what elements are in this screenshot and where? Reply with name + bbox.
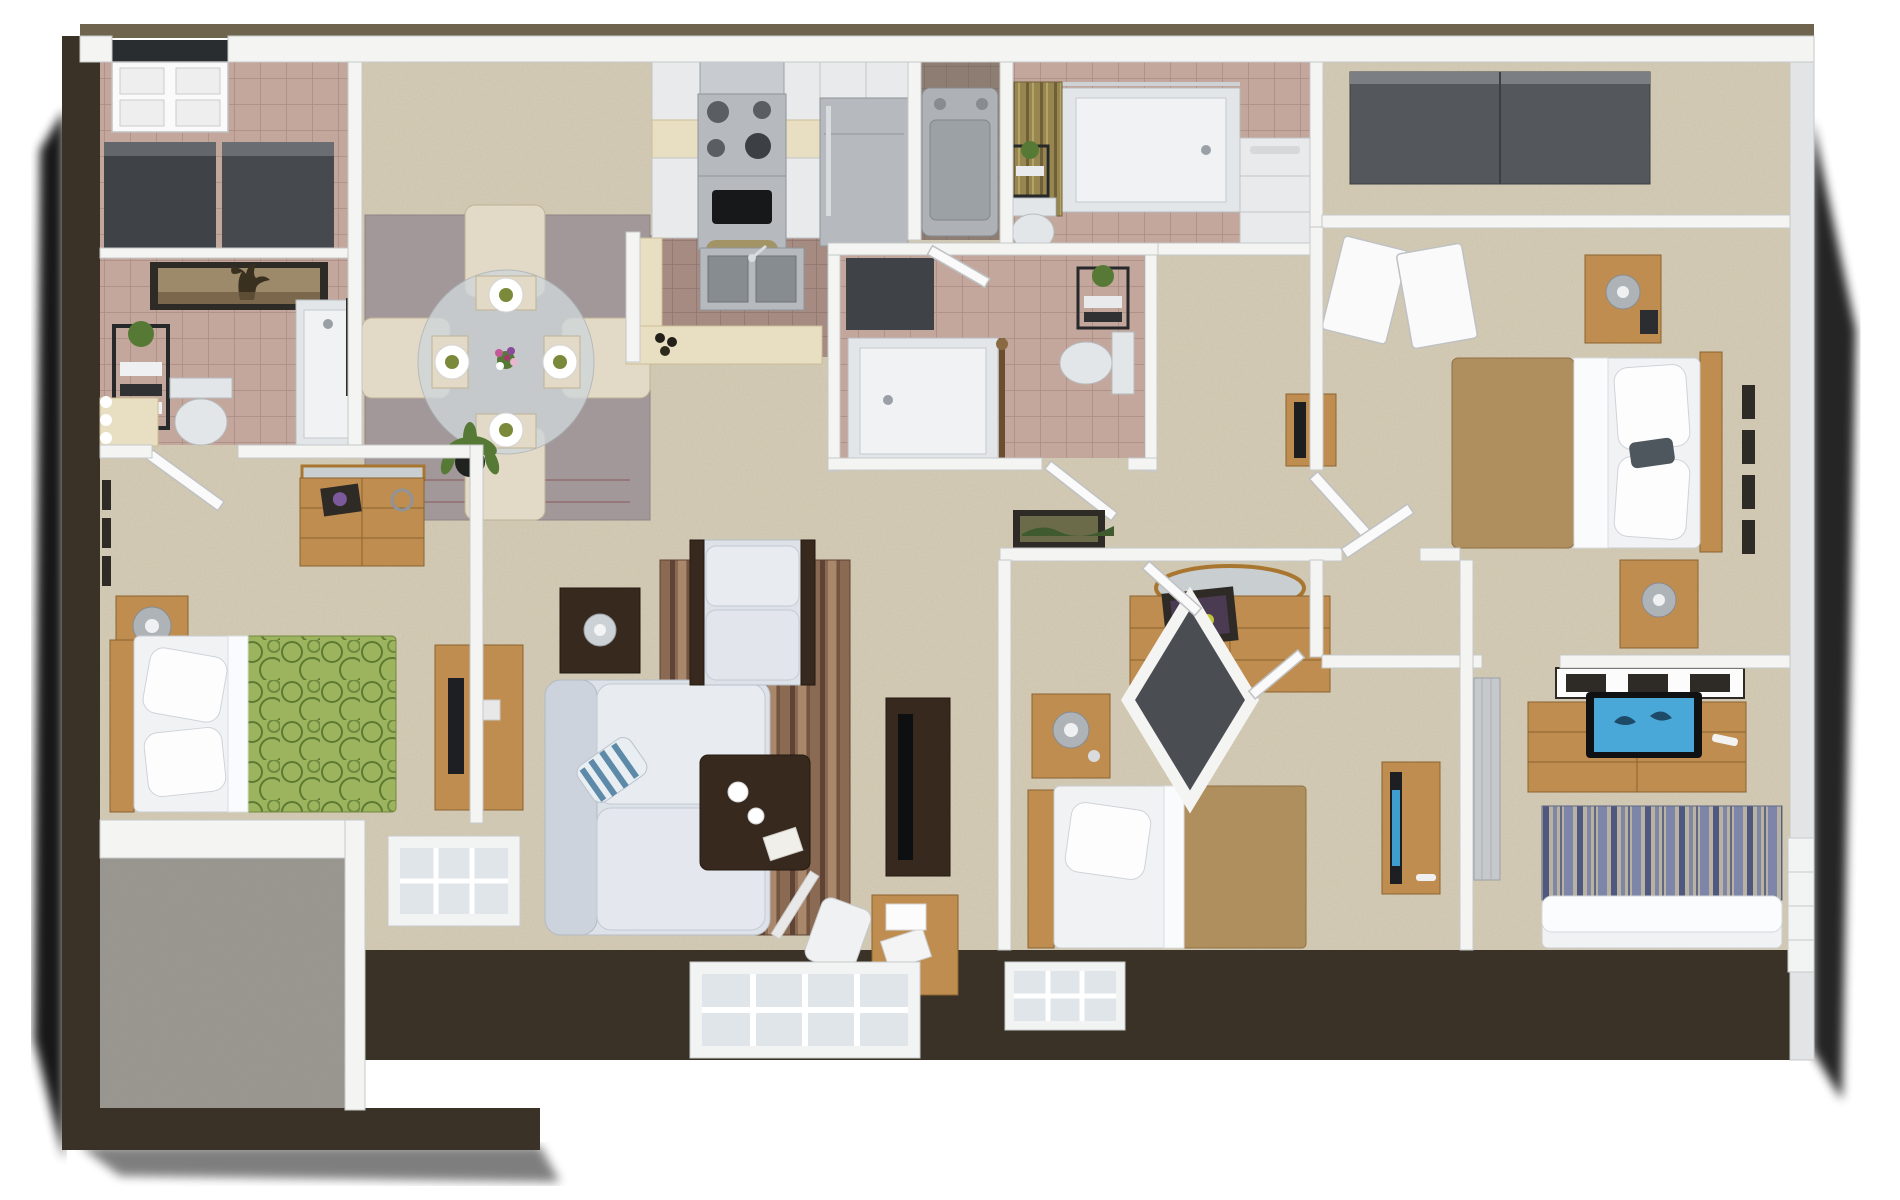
tub-drain [1201,145,1211,155]
floor-plan-svg [0,0,1900,1200]
bedroom-striped-window [1788,838,1814,972]
top-wall [228,36,1814,62]
sheet-fold [1574,358,1608,548]
patio-top-wall [100,820,365,858]
mirrored-closet-door [1474,678,1500,880]
vanity-cabinets [1240,138,1310,248]
shower-head [996,338,1008,350]
nightstand [1620,560,1698,648]
double-sink [700,246,804,310]
toilet [170,378,232,445]
sheet-band [1542,896,1782,932]
kitchen-laundry-wall [908,62,921,240]
bath-closet-wall [1310,62,1323,227]
range-hood [700,58,784,94]
pillow [1613,364,1691,451]
bed-master [1452,352,1722,552]
headboard [1700,352,1722,552]
sheet-fold [228,636,248,812]
foyer-bath-divider [100,248,348,258]
entry-double-door [112,62,228,132]
shower-rod-pole [999,338,1005,464]
headboard [1028,790,1054,948]
laundry-closet [922,88,998,236]
tan-bedspread [1452,358,1574,548]
bedroom-green-top-wall [238,445,482,458]
bathroom-gold-bottom-wall [1140,243,1310,255]
bedroom-green-bay-window [388,836,520,926]
book [1640,310,1658,334]
floor-plan-canvas [0,0,1900,1200]
bedroom-divider-wall [1460,560,1473,950]
pillow [1064,801,1153,881]
linen-closet [846,258,934,330]
framed-landscape-art [1013,510,1114,548]
clock [1088,750,1100,762]
bed-green [110,636,396,812]
monitor [448,678,464,774]
patio-right-wall [345,820,365,1110]
nightstand [1585,255,1661,343]
remote-control [1416,874,1436,881]
hall-bedroom-wall [1000,548,1342,561]
patio-bottom-exterior-wall [62,1108,540,1150]
dresser-with-mirror [300,466,424,566]
paper [886,904,926,930]
foyer-right-wall [348,62,362,445]
toilet [1010,198,1056,250]
right-edge-shadow [1812,120,1856,1100]
tan-bedspread [1180,786,1306,948]
bed-tan [1028,786,1306,948]
pillow [143,726,227,798]
bed-striped [1542,806,1782,948]
sheet-fold [1164,786,1184,948]
tv-screen [1392,790,1400,866]
patio-floor-texture [100,858,345,1108]
walk-in-closet [1350,72,1650,184]
hall-closet [104,142,216,248]
left-exterior-wall [62,36,100,1150]
flat-tv [898,714,913,860]
tv-console [1382,762,1440,894]
bottom-edge-shadow [80,1146,560,1182]
breakfast-bar [626,238,822,364]
bedroom-tan-left-wall [998,560,1011,950]
entry-doorway [112,40,228,64]
tv-dolphin-screen [1594,698,1694,752]
end-table [560,588,640,673]
laundry-bath-wall [1000,62,1013,255]
master-left-wall [1310,227,1323,470]
bedroom-tan-window [1005,962,1125,1030]
left-edge-shadow [34,110,64,1160]
coffee-table [700,755,810,870]
living-room-window [690,962,920,1058]
kitchen-half-wall [626,232,640,362]
lighted-vanity-mirror [100,396,158,446]
pillow [141,646,229,725]
bathroom-center-top-wall [828,243,1158,255]
striped-bedspread [1542,806,1782,900]
green-circle-bedspread [244,636,396,812]
dresser-with-tv [1528,692,1746,792]
wall-art-trio [102,480,111,586]
refrigerator [820,98,908,246]
media-console [886,698,950,876]
master-bottom-wall [1560,655,1790,668]
pillow [1613,456,1690,541]
closet-master-divider [1322,215,1790,228]
hall-closet [222,142,334,248]
headboard [110,640,134,812]
stove-with-oven [698,58,786,274]
armchair [690,540,815,685]
bedroom-green-right-wall [470,445,483,823]
nightstand [1032,694,1110,778]
